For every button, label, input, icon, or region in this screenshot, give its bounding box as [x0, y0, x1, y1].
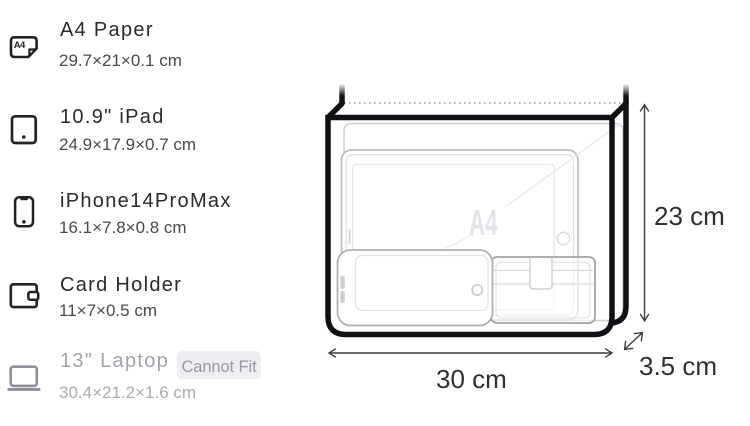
svg-text:A4: A4 [14, 40, 26, 51]
svg-text:A4: A4 [469, 204, 498, 244]
